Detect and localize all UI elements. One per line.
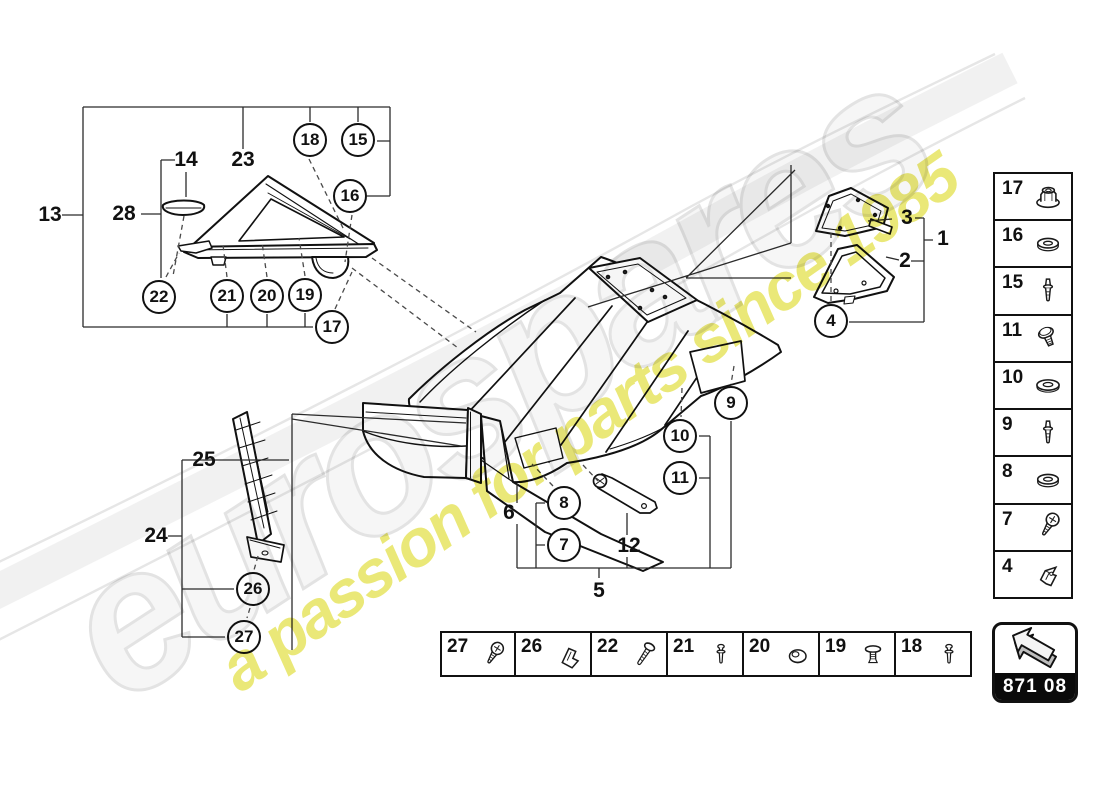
fastener-ref: 26	[521, 636, 542, 658]
callout-label-24: 24	[144, 524, 167, 548]
legend-item-11[interactable]: 11	[993, 316, 1073, 363]
fastener-ref: 22	[597, 636, 618, 658]
fastener-ref: 19	[825, 636, 846, 658]
legend-item-9[interactable]: 9	[993, 410, 1073, 457]
fastener-ref: 27	[447, 636, 468, 658]
washer-flat-icon	[1029, 366, 1067, 404]
fastener-ref: 7	[1002, 509, 1013, 531]
small-pin-icon	[703, 637, 739, 673]
washer-icon	[1029, 461, 1067, 499]
callout-circle-27[interactable]: 27	[227, 620, 261, 654]
fastener-ref: 16	[1002, 225, 1023, 247]
callout-label-2: 2	[899, 249, 911, 273]
fastener-ref: 8	[1002, 461, 1013, 483]
callout-label-3: 3	[901, 206, 913, 230]
part-code-label: 871 08	[995, 673, 1075, 700]
clip-icon	[551, 637, 587, 673]
callout-circle-7[interactable]: 7	[547, 528, 581, 562]
callout-circle-22[interactable]: 22	[142, 280, 176, 314]
legend-item-21[interactable]: 21	[668, 631, 744, 677]
legend-item-8[interactable]: 8	[993, 457, 1073, 504]
legend-item-15[interactable]: 15	[993, 268, 1073, 315]
callout-label-25: 25	[192, 448, 215, 472]
grommet-icon	[779, 637, 815, 673]
washer-icon	[1029, 225, 1067, 263]
pan-screw-icon	[475, 637, 511, 673]
legend-item-4[interactable]: 4	[993, 552, 1073, 599]
callout-label-14: 14	[174, 148, 197, 172]
callout-label-12: 12	[617, 534, 640, 558]
parts-artwork	[163, 176, 894, 571]
legend-item-22[interactable]: 22	[592, 631, 668, 677]
fastener-ref: 9	[1002, 414, 1013, 436]
thread-screw-icon	[627, 637, 663, 673]
fastener-ref: 15	[1002, 272, 1023, 294]
callout-label-23: 23	[231, 148, 254, 172]
callout-circle-4[interactable]: 4	[814, 304, 848, 338]
legend-item-26[interactable]: 26	[516, 631, 592, 677]
fastener-ref: 21	[673, 636, 694, 658]
small-pin-icon	[931, 637, 967, 673]
callout-label-13: 13	[38, 203, 61, 227]
callout-label-6: 6	[503, 501, 515, 525]
arrow-up-left-icon	[1005, 627, 1065, 671]
fastener-legend-row: 27 26 22 21 20 19 18	[440, 631, 972, 677]
flange-nut-icon	[1029, 178, 1067, 216]
rivet-pin-icon	[1029, 414, 1067, 452]
clip-nut-icon	[1029, 555, 1067, 593]
diagram-line-art	[0, 0, 1100, 800]
legend-item-19[interactable]: 19	[820, 631, 896, 677]
callout-label-28: 28	[112, 202, 135, 226]
fastener-ref: 18	[901, 636, 922, 658]
pan-screw-icon	[1029, 508, 1067, 546]
rivet-pin-icon	[1029, 272, 1067, 310]
push-rivet-icon	[855, 637, 891, 673]
callout-circle-9[interactable]: 9	[714, 386, 748, 420]
part-code-box[interactable]: 871 08	[992, 622, 1078, 703]
callout-circle-21[interactable]: 21	[210, 279, 244, 313]
fastener-ref: 11	[1002, 320, 1022, 342]
legend-item-10[interactable]: 10	[993, 363, 1073, 410]
legend-item-27[interactable]: 27	[440, 631, 516, 677]
legend-item-20[interactable]: 20	[744, 631, 820, 677]
callout-label-1: 1	[937, 227, 949, 251]
parts-diagram-page: 1815162221201917491011872627131423283122…	[0, 0, 1100, 800]
callout-circle-26[interactable]: 26	[236, 572, 270, 606]
callout-circle-19[interactable]: 19	[288, 278, 322, 312]
fastener-ref: 10	[1002, 367, 1023, 389]
legend-item-17[interactable]: 17	[993, 174, 1073, 221]
callout-label-5: 5	[593, 579, 605, 603]
callout-circle-20[interactable]: 20	[250, 279, 284, 313]
callout-circle-18[interactable]: 18	[293, 123, 327, 157]
callout-circle-16[interactable]: 16	[333, 179, 367, 213]
fastener-ref: 17	[1002, 178, 1023, 200]
bolt-icon	[1029, 319, 1067, 357]
callout-circle-8[interactable]: 8	[547, 486, 581, 520]
fastener-ref: 20	[749, 636, 770, 658]
fastener-legend-column: 17 16 15 11 10 9 8 7 4	[993, 172, 1073, 599]
callout-circle-11[interactable]: 11	[663, 461, 697, 495]
legend-item-7[interactable]: 7	[993, 505, 1073, 552]
fastener-ref: 4	[1002, 556, 1013, 578]
callout-circle-15[interactable]: 15	[341, 123, 375, 157]
callout-circle-10[interactable]: 10	[663, 419, 697, 453]
legend-item-16[interactable]: 16	[993, 221, 1073, 268]
legend-item-18[interactable]: 18	[896, 631, 972, 677]
callout-circle-17[interactable]: 17	[315, 310, 349, 344]
